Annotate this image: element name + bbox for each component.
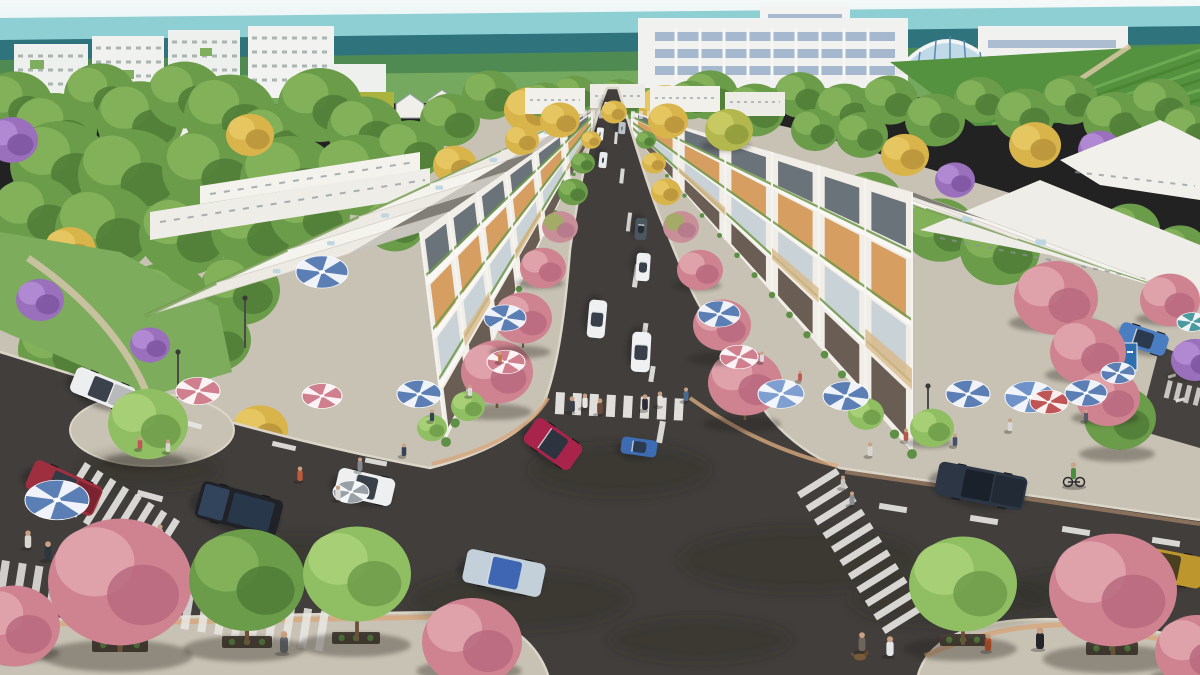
green-tree [791, 109, 839, 151]
umbrella [946, 380, 990, 407]
yellow-tree [881, 134, 929, 176]
umbrella [176, 377, 220, 404]
umbrella [758, 380, 804, 409]
umbrella [1065, 380, 1107, 406]
yellow-tree [1009, 122, 1061, 168]
yellow-tree [540, 102, 580, 137]
purple-tree [16, 279, 64, 321]
purple-tree [935, 162, 975, 197]
umbrella [25, 480, 89, 520]
green-tree [836, 112, 888, 158]
umbrella [720, 345, 758, 369]
umbrella [823, 382, 869, 411]
yellow-tree [651, 179, 681, 205]
yellow-tree [505, 125, 539, 155]
yellow-tree [642, 152, 666, 173]
umbrella [487, 350, 525, 374]
yellow-tree [581, 131, 601, 149]
pinkg-tree [663, 211, 699, 243]
yellow-tree [226, 114, 274, 156]
green-tree [183, 529, 305, 662]
purple-tree [130, 327, 170, 362]
umbrella [1101, 362, 1135, 383]
umbrella [484, 305, 526, 331]
pinkg-tree [542, 211, 578, 243]
umbrella [397, 380, 441, 407]
umbrella [296, 256, 348, 288]
green-tree [571, 152, 595, 173]
umbrella [698, 301, 740, 327]
architectural-render [0, 0, 1200, 675]
umbrella [302, 384, 342, 409]
green-tree [636, 131, 656, 149]
green-tree [558, 179, 588, 205]
umbrella [1030, 390, 1068, 414]
yellow-tree [601, 101, 627, 124]
lgreen-tree [297, 526, 411, 656]
lgreen-tree [903, 536, 1017, 660]
pink-tree [41, 519, 192, 672]
yellow-tree [648, 103, 688, 138]
render-canvas [0, 0, 1200, 675]
